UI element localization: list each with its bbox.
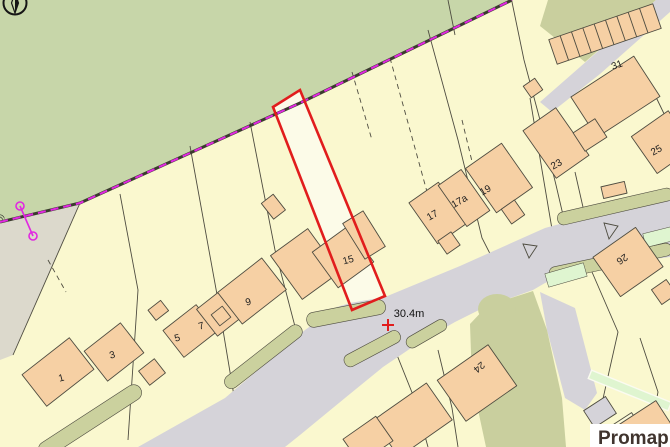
measurement-label: 30.4m [394, 308, 425, 320]
promap-logo-text: Promap [598, 428, 669, 447]
map-viewport: 1 3 5 7 9 15 17 17a 19 23 31 25 26 24 ))… [0, 0, 670, 447]
map-canvas[interactable]: 1 3 5 7 9 15 17 17a 19 23 31 25 26 24 ))… [0, 0, 670, 447]
junction-island [478, 294, 516, 324]
promap-logo: Promap [590, 424, 670, 447]
